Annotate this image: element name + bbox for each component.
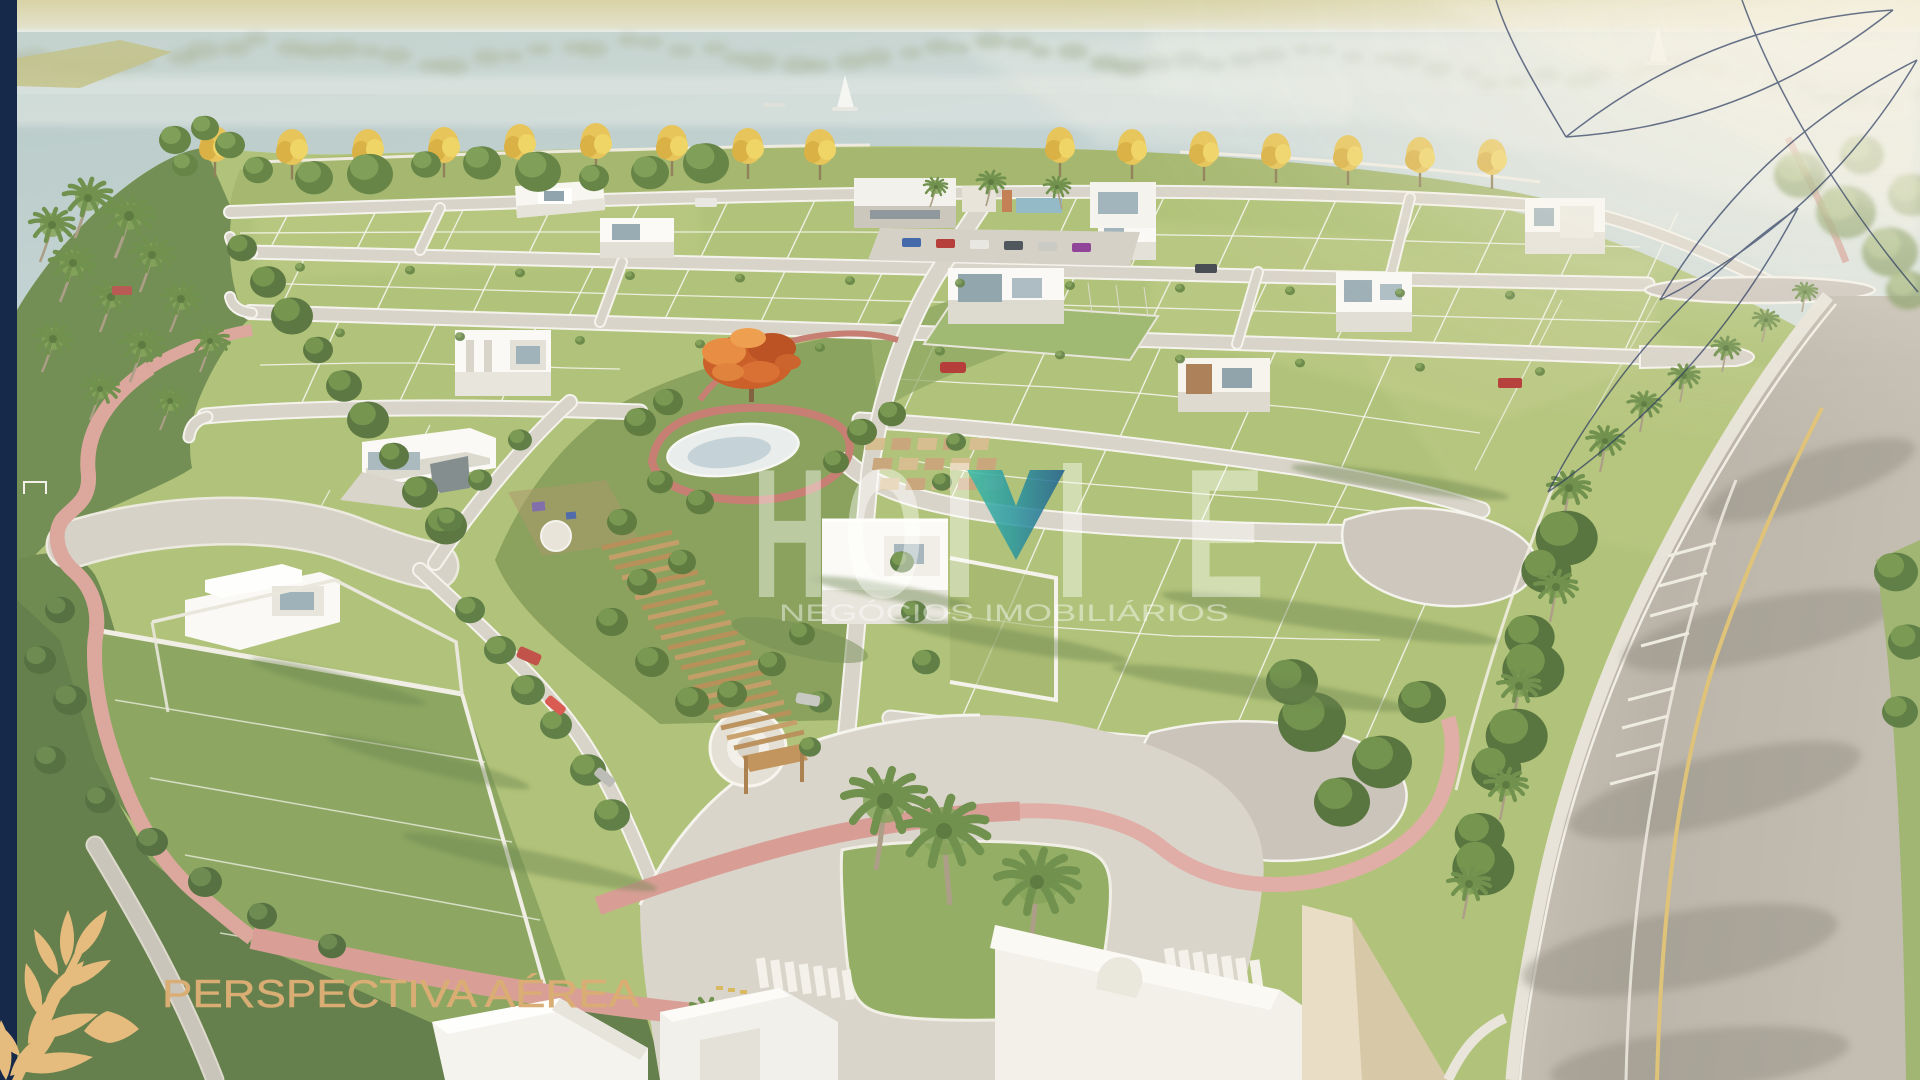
svg-text:PERSPECTIVA AÉREA: PERSPECTIVA AÉREA [162,973,639,1016]
svg-text:NEGÓCIOS IMOBILIÁRIOS: NEGÓCIOS IMOBILIÁRIOS [779,600,1229,627]
